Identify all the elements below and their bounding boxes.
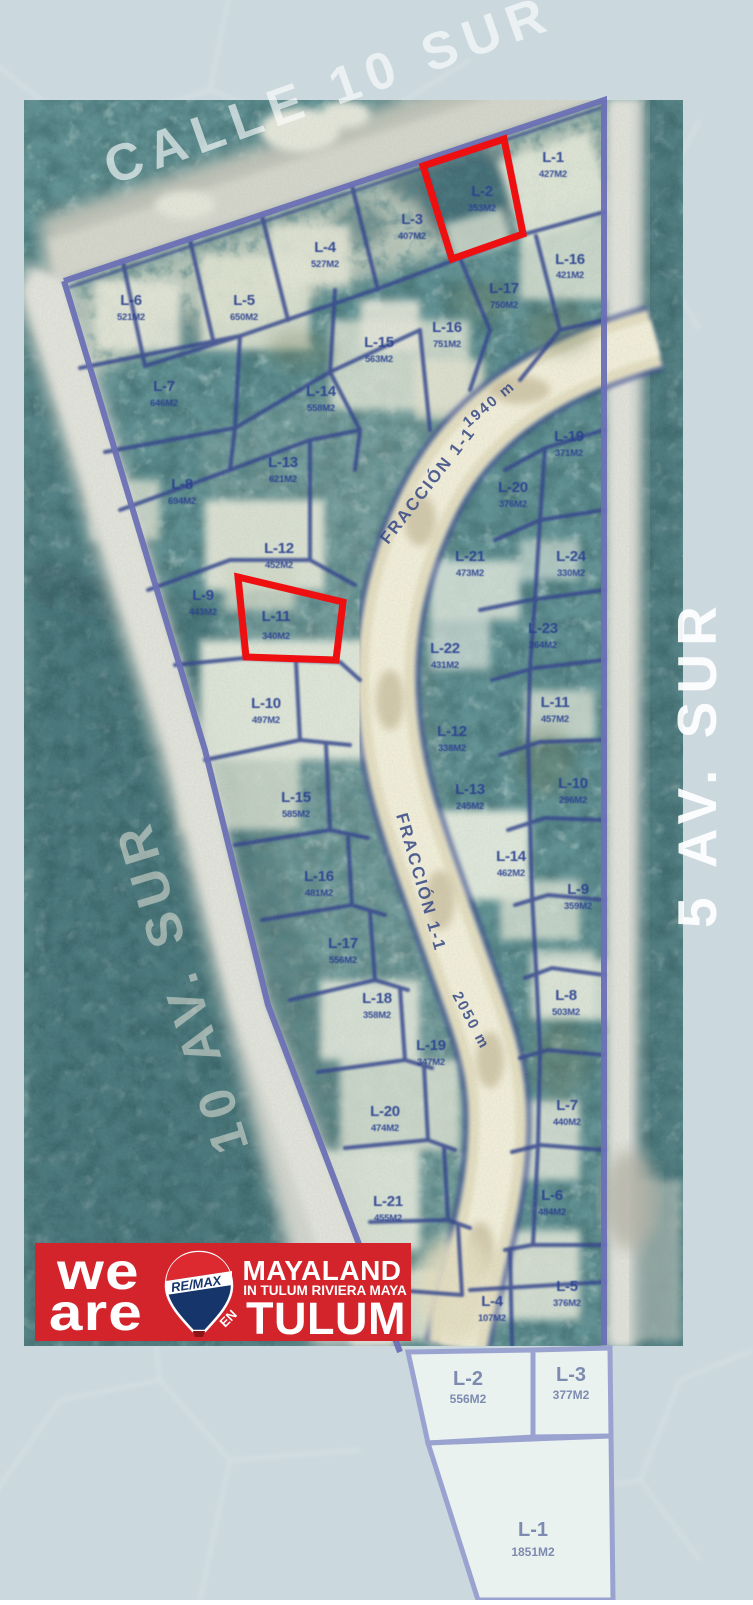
svg-text:364M2: 364M2: [529, 640, 557, 651]
svg-text:L-3: L-3: [556, 1364, 586, 1386]
svg-text:L-16: L-16: [555, 251, 585, 268]
svg-text:L-7: L-7: [556, 1097, 578, 1114]
svg-text:L-9: L-9: [567, 881, 589, 898]
svg-text:L-1: L-1: [542, 149, 564, 166]
svg-text:527M2: 527M2: [311, 259, 339, 270]
svg-text:474M2: 474M2: [371, 1123, 399, 1134]
svg-text:L-6: L-6: [541, 1187, 563, 1204]
svg-text:421M2: 421M2: [556, 270, 584, 281]
svg-text:338M2: 338M2: [438, 743, 466, 754]
svg-text:L-22: L-22: [430, 640, 460, 657]
svg-text:L-17: L-17: [328, 935, 358, 952]
svg-text:484M2: 484M2: [538, 1207, 566, 1218]
svg-text:427M2: 427M2: [539, 169, 567, 180]
svg-text:359M2: 359M2: [564, 901, 592, 912]
svg-text:750M2: 750M2: [490, 300, 518, 311]
svg-text:L-7: L-7: [153, 378, 175, 395]
svg-text:694M2: 694M2: [168, 496, 196, 507]
svg-text:L-1: L-1: [518, 1519, 548, 1541]
svg-text:296M2: 296M2: [559, 795, 587, 806]
svg-text:L-15: L-15: [364, 334, 394, 351]
svg-text:L-5: L-5: [233, 292, 255, 309]
svg-text:are: are: [49, 1283, 143, 1341]
svg-text:455M2: 455M2: [374, 1213, 402, 1224]
svg-text:376M2: 376M2: [553, 1298, 581, 1309]
svg-text:L-6: L-6: [120, 292, 142, 309]
svg-text:L-17: L-17: [489, 280, 519, 297]
svg-text:L-20: L-20: [498, 479, 528, 496]
svg-text:407M2: 407M2: [398, 231, 426, 242]
svg-text:L-16: L-16: [304, 868, 334, 885]
svg-text:L-10: L-10: [251, 695, 281, 712]
svg-text:L-2: L-2: [453, 1368, 483, 1390]
svg-text:353M2: 353M2: [468, 203, 496, 214]
svg-text:347M2: 347M2: [417, 1057, 445, 1068]
svg-text:5 AV. SUR: 5 AV. SUR: [666, 598, 728, 928]
svg-text:L-2: L-2: [471, 183, 493, 200]
svg-text:L-20: L-20: [370, 1103, 400, 1120]
svg-text:L-18: L-18: [362, 990, 392, 1007]
svg-text:L-16: L-16: [432, 319, 462, 336]
svg-text:L-24: L-24: [556, 548, 587, 565]
svg-text:521M2: 521M2: [117, 312, 145, 323]
svg-text:L-14: L-14: [496, 848, 527, 865]
svg-text:L-23: L-23: [528, 620, 558, 637]
svg-text:646M2: 646M2: [150, 398, 178, 409]
svg-text:443M2: 443M2: [189, 607, 217, 618]
svg-text:440M2: 440M2: [553, 1117, 581, 1128]
svg-text:L-12: L-12: [437, 723, 467, 740]
svg-text:650M2: 650M2: [230, 312, 258, 323]
svg-text:L-15: L-15: [281, 789, 311, 806]
svg-text:107M2: 107M2: [478, 1313, 506, 1324]
svg-text:340M2: 340M2: [262, 631, 290, 642]
svg-text:L-4: L-4: [481, 1293, 504, 1310]
svg-text:L-8: L-8: [555, 987, 577, 1004]
svg-text:L-8: L-8: [171, 476, 193, 493]
svg-text:L-19: L-19: [416, 1037, 446, 1054]
svg-text:L-21: L-21: [455, 548, 485, 565]
svg-text:358M2: 358M2: [363, 1010, 391, 1021]
svg-text:L-13: L-13: [268, 454, 298, 471]
svg-text:L-9: L-9: [192, 587, 214, 604]
svg-text:L-4: L-4: [314, 239, 337, 256]
svg-text:330M2: 330M2: [557, 568, 585, 579]
svg-text:L-10: L-10: [558, 775, 588, 792]
svg-text:556M2: 556M2: [329, 955, 357, 966]
svg-text:431M2: 431M2: [431, 660, 459, 671]
svg-text:452M2: 452M2: [265, 560, 293, 571]
svg-text:503M2: 503M2: [552, 1007, 580, 1018]
svg-text:377M2: 377M2: [553, 1388, 590, 1402]
svg-text:457M2: 457M2: [541, 714, 569, 725]
svg-text:L-14: L-14: [306, 383, 337, 400]
svg-text:L-12: L-12: [264, 540, 294, 557]
svg-text:462M2: 462M2: [497, 868, 525, 879]
svg-text:585M2: 585M2: [282, 809, 310, 820]
svg-text:L-19: L-19: [554, 428, 584, 445]
svg-text:376M2: 376M2: [499, 499, 527, 510]
svg-text:751M2: 751M2: [433, 339, 461, 350]
svg-text:L-5: L-5: [556, 1278, 578, 1295]
svg-text:MAYALAND: MAYALAND: [242, 1255, 401, 1286]
svg-text:563M2: 563M2: [365, 354, 393, 365]
svg-text:497M2: 497M2: [252, 715, 280, 726]
svg-text:473M2: 473M2: [456, 568, 484, 579]
svg-text:L-11: L-11: [262, 608, 291, 625]
svg-text:L-13: L-13: [455, 781, 485, 798]
svg-text:371M2: 371M2: [555, 448, 583, 459]
svg-text:1851M2: 1851M2: [511, 1545, 555, 1559]
svg-text:L-3: L-3: [401, 211, 423, 228]
svg-text:621M2: 621M2: [269, 474, 297, 485]
svg-text:481M2: 481M2: [305, 888, 333, 899]
svg-text:L-21: L-21: [373, 1193, 403, 1210]
svg-text:245M2: 245M2: [456, 801, 484, 812]
svg-text:556M2: 556M2: [450, 1392, 487, 1406]
svg-text:L-11: L-11: [541, 694, 570, 711]
svg-text:558M2: 558M2: [307, 403, 335, 414]
svg-text:TULUM: TULUM: [246, 1293, 406, 1344]
